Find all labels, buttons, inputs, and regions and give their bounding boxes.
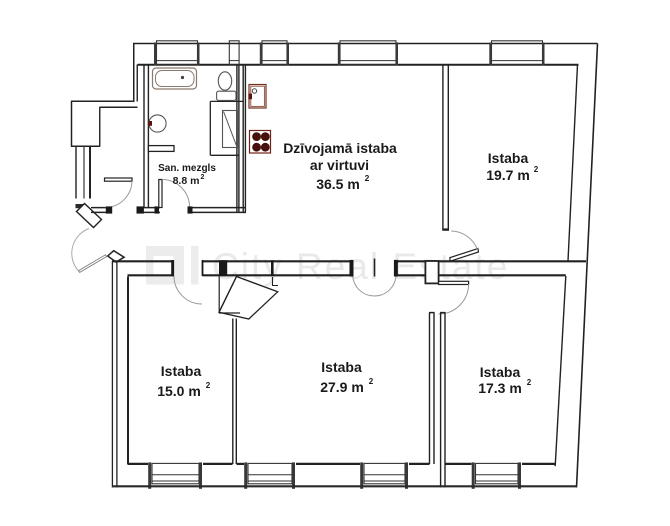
svg-text:2: 2 bbox=[527, 378, 532, 387]
svg-text:2: 2 bbox=[201, 174, 205, 181]
svg-text:15.0 m: 15.0 m bbox=[157, 383, 201, 399]
svg-text:2: 2 bbox=[365, 173, 370, 183]
svg-text:2: 2 bbox=[534, 165, 539, 174]
svg-text:19.7 m: 19.7 m bbox=[486, 167, 530, 183]
svg-text:27.9 m: 27.9 m bbox=[320, 379, 364, 395]
svg-text:Dzīvojamā istaba: Dzīvojamā istaba bbox=[283, 140, 397, 156]
svg-text:Istaba: Istaba bbox=[321, 359, 362, 375]
svg-text:8.8 m: 8.8 m bbox=[173, 175, 200, 187]
svg-text:ar virtuvi: ar virtuvi bbox=[310, 157, 369, 173]
svg-text:Istaba: Istaba bbox=[480, 364, 521, 380]
svg-text:36.5 m: 36.5 m bbox=[316, 176, 360, 192]
svg-text:Istaba: Istaba bbox=[488, 150, 529, 166]
svg-text:San. mezgls: San. mezgls bbox=[158, 163, 216, 174]
svg-text:2: 2 bbox=[369, 377, 374, 386]
svg-text:2: 2 bbox=[206, 381, 211, 390]
svg-text:Istaba: Istaba bbox=[161, 363, 202, 379]
svg-text:17.3 m: 17.3 m bbox=[478, 380, 522, 396]
